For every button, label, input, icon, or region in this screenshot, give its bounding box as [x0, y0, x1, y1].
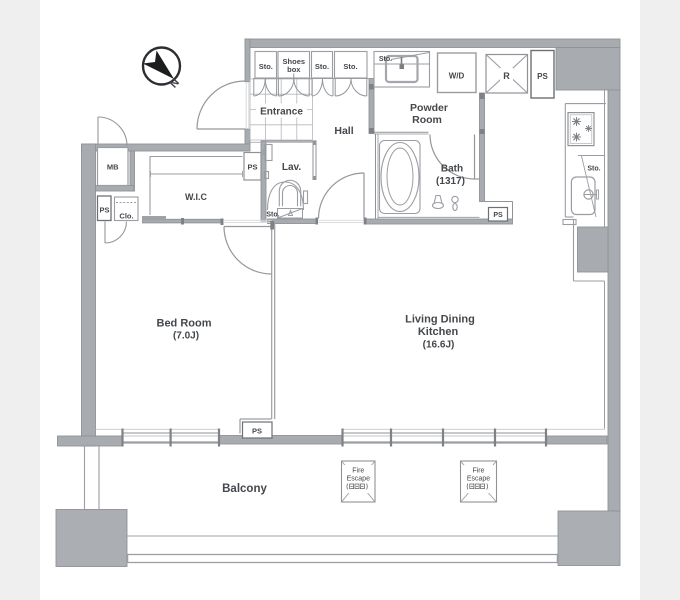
svg-text:PS: PS — [99, 206, 109, 215]
svg-text:Sto.: Sto. — [587, 166, 600, 173]
svg-text:Entrance: Entrance — [260, 107, 303, 118]
svg-text:W/D: W/D — [449, 72, 465, 81]
svg-text:PS: PS — [493, 212, 503, 219]
svg-text:R: R — [503, 71, 510, 81]
svg-text:MB: MB — [107, 163, 119, 172]
svg-text:PS: PS — [247, 163, 257, 172]
svg-text:(7.0J): (7.0J) — [173, 331, 199, 342]
svg-text:(16.6J): (16.6J) — [423, 340, 455, 351]
svg-text:Room: Room — [412, 114, 442, 126]
svg-text:W.I.C: W.I.C — [185, 192, 207, 202]
svg-text:Sto.: Sto. — [259, 62, 273, 71]
svg-text:Hall: Hall — [334, 125, 353, 137]
svg-text:Clo.: Clo. — [119, 212, 133, 221]
svg-text:Sto.: Sto. — [343, 62, 357, 71]
svg-text:(1317): (1317) — [436, 176, 465, 187]
svg-text:Fire: Fire — [352, 468, 364, 475]
svg-text:Bath: Bath — [441, 164, 463, 175]
svg-text:Living Dining: Living Dining — [405, 314, 475, 326]
svg-text:Lav.: Lav. — [282, 162, 301, 173]
svg-text:Escape: Escape — [467, 476, 490, 483]
svg-text:Escape: Escape — [347, 476, 370, 483]
svg-text:Bed Room: Bed Room — [157, 318, 212, 330]
svg-text:Fire: Fire — [472, 468, 484, 475]
svg-text:PS: PS — [537, 72, 548, 81]
svg-text:Kitchen: Kitchen — [418, 326, 459, 338]
svg-text:Powder: Powder — [410, 102, 448, 114]
svg-text:Sto.: Sto. — [266, 212, 279, 219]
svg-text:Sto.: Sto. — [315, 62, 329, 71]
svg-text:PS: PS — [252, 427, 262, 436]
svg-text:Balcony: Balcony — [222, 483, 267, 495]
svg-text:box: box — [287, 65, 301, 74]
svg-text:Sto.: Sto. — [379, 56, 392, 63]
